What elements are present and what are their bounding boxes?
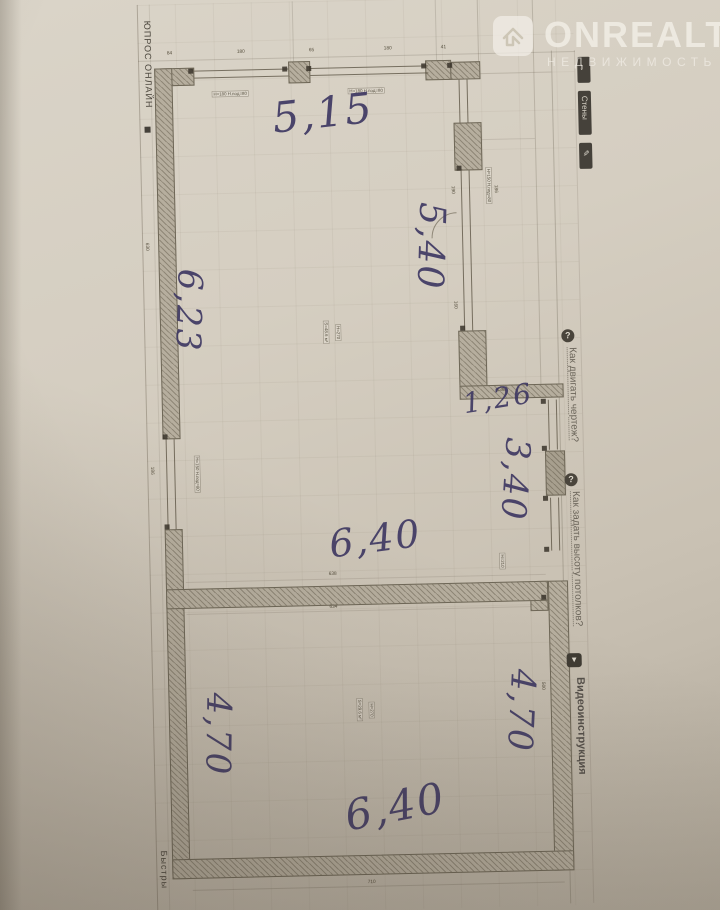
walls-tool-label: Стены (580, 96, 590, 120)
wall-right-pier (453, 122, 482, 171)
marker-square (460, 326, 465, 331)
page-label-top-left: ЮПРОС ОНЛАЙН (142, 21, 154, 109)
marker-square (421, 63, 426, 68)
wall-top-right-corner (450, 61, 480, 80)
dim-top-3: 65 (309, 47, 314, 53)
window-top-2b (310, 72, 428, 76)
marker-square (544, 547, 549, 552)
handwritten-right-mid: 3,40 (492, 436, 537, 522)
marker-square (162, 434, 167, 439)
window-right-upper-b2 (469, 170, 474, 330)
window-right-upper-b (461, 171, 466, 331)
dim-bottom: 710 (368, 879, 376, 885)
marker-square (542, 446, 547, 451)
window-top-1b (194, 76, 288, 79)
bullet-icon (144, 127, 150, 133)
dim-top-1: 84 (167, 50, 172, 56)
handwritten-top-width: 5,15 (270, 83, 376, 143)
window-label-right: H=150 H.под=80 (485, 167, 492, 204)
dim-right-win-c: 160 (453, 301, 459, 309)
extension-line-v2 (435, 0, 437, 60)
window-top-1 (194, 69, 288, 72)
handwritten-left-upper: 6,23 (167, 268, 209, 353)
dim-top-5: 41 (441, 44, 446, 50)
dim-top-2: 180 (237, 49, 245, 55)
handwritten-mid-width: 6,40 (327, 511, 424, 566)
window-right-upper-a (459, 80, 461, 123)
extension-line-h2 (482, 138, 535, 140)
dim-mid-above: 638 (329, 571, 337, 577)
marker-square (282, 67, 287, 72)
wall-tool-icon-2[interactable]: ✎ (579, 143, 593, 169)
window-right-mid-a (548, 400, 550, 450)
floor-plan-photo: 84 180 65 180 41 630 186 190 186 160 136… (0, 0, 720, 910)
help-link-move-drawing[interactable]: Как двигать чертеж? (567, 347, 580, 442)
door-label: H=210 (499, 553, 505, 570)
wall-right-radiator-pier (545, 450, 566, 495)
window-left-2 (174, 439, 177, 529)
marker-square (306, 66, 311, 71)
wall-middle (166, 581, 548, 610)
question-icon: ? (564, 473, 577, 486)
floor-plan-page: 84 180 65 180 41 630 186 190 186 160 136… (0, 0, 720, 910)
page-label-bottom-left: Быстры (159, 850, 170, 889)
window-right-mid-b2 (558, 497, 560, 550)
marker-square (541, 399, 546, 404)
video-icon[interactable]: ▼ (567, 653, 582, 667)
window-right-mid-b (550, 498, 552, 551)
handwritten-bottom-width: 6,40 (341, 773, 450, 841)
window-label-top-1: H=180 H.под=80 (212, 90, 249, 97)
marker-square (165, 524, 170, 529)
handwritten-left-lower: 4,70 (197, 692, 238, 776)
extension-line-v3 (477, 0, 479, 61)
dim-left-lower: 186 (150, 467, 156, 475)
room-lower-height-label: H=270 (369, 702, 375, 719)
marker-square (188, 69, 193, 74)
video-instruction-link[interactable]: Видеоинструкция (574, 677, 588, 775)
question-icon: ? (561, 329, 574, 342)
pencil-icon: ✎ (581, 150, 590, 157)
dim-mid-below: 634 (329, 604, 337, 610)
room-upper-area-label: S=48.6 м² (323, 321, 330, 344)
onrealt-watermark: ONREALT НЕДВИЖИМОСТЬ (492, 14, 716, 70)
room-upper-height-label: H=270 (335, 324, 341, 341)
marker-square (541, 595, 546, 600)
wall-bottom (172, 850, 574, 879)
wall-right-upper (458, 330, 487, 388)
marker-square (447, 63, 452, 68)
wall-top-pier-1 (288, 61, 310, 83)
window-left (166, 439, 169, 529)
onrealt-logo-icon (492, 15, 534, 57)
watermark-brand: ONREALT (544, 14, 720, 56)
room-lower-area-label: S=29.6 м² (356, 698, 363, 721)
watermark-subtitle: НЕДВИЖИМОСТЬ (547, 55, 717, 69)
window-top-2 (310, 65, 428, 69)
handwritten-right-lower: 4,70 (499, 668, 543, 753)
extension-line-v1 (292, 1, 294, 63)
dim-right-win-b: 186 (494, 185, 500, 193)
window-right-upper-a2 (467, 79, 469, 122)
window-label-left: H=150 H.под=80 (194, 456, 201, 493)
marker-square (456, 166, 461, 171)
dim-left-upper: 630 (145, 243, 151, 251)
wall-right-lower (548, 580, 575, 870)
marker-square (543, 496, 548, 501)
handwritten-right-upper: 5,40 (409, 202, 453, 291)
help-link-ceiling-height[interactable]: Как задать высоту потолков? (570, 491, 584, 626)
extension-line-h1 (480, 72, 551, 75)
dim-top-4: 180 (384, 45, 392, 51)
dim-line-bottom (193, 881, 565, 890)
window-right-mid-a2 (556, 400, 558, 450)
walls-tool-badge[interactable]: Стены (578, 91, 592, 135)
dim-right-win-a: 190 (451, 186, 457, 194)
